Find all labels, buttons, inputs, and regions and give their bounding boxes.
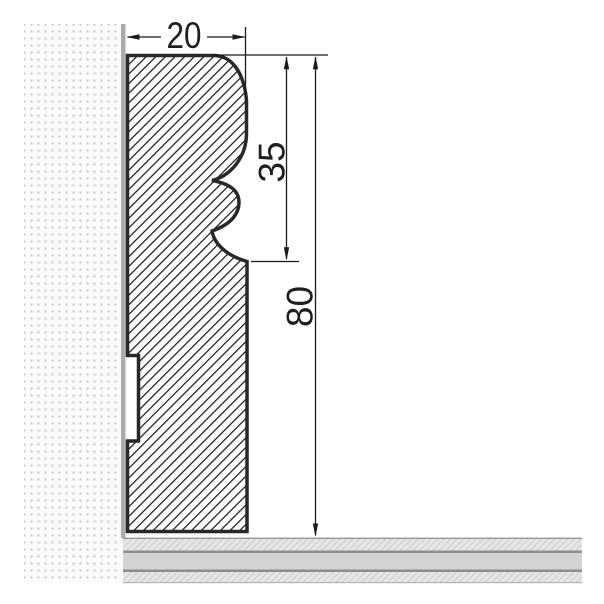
- arrow-down-icon: [313, 524, 318, 537]
- arrow-right-icon: [233, 34, 246, 39]
- floor-screed-upper: [123, 539, 582, 551]
- floor-layers: [123, 538, 582, 584]
- floor-layer-line: [123, 551, 582, 554]
- floor-layer-line: [123, 570, 582, 573]
- floor-bottom-line: [123, 582, 582, 583]
- floor-screed-lower: [123, 572, 582, 582]
- arrow-up-icon: [313, 56, 318, 69]
- wall-plaster-area: [24, 24, 121, 583]
- wall-surface-line: [121, 24, 126, 538]
- skirting-board-section-drawing: 20 35 80: [0, 0, 604, 604]
- arrow-down-icon: [284, 247, 289, 260]
- dim-profile-height-label: 35: [252, 141, 293, 182]
- floor-top-line: [123, 538, 582, 539]
- dim-width-label: 20: [167, 16, 202, 57]
- technical-drawing-page: 20 35 80: [0, 0, 604, 604]
- dim-total-height-label: 80: [280, 286, 321, 327]
- arrow-up-icon: [284, 56, 289, 69]
- arrow-left-icon: [127, 34, 140, 39]
- skirting-board-profile: [128, 56, 248, 532]
- floor-core-layer: [123, 553, 582, 570]
- rear-cable-groove: [129, 358, 137, 440]
